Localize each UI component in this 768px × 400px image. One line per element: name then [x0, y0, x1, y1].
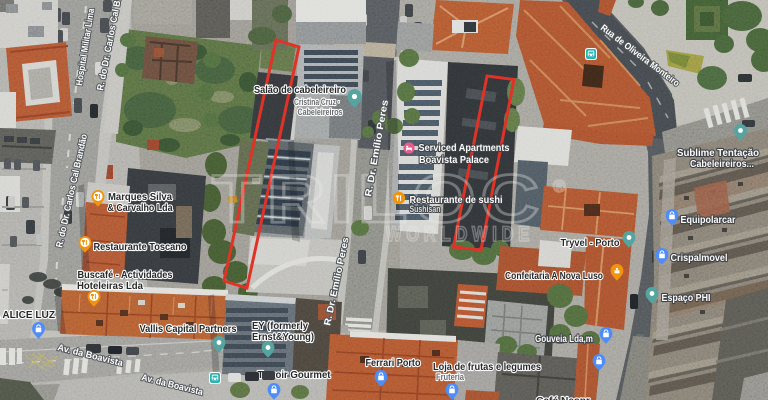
svg-text:Buscafé - Actividades: Buscafé - Actividades — [78, 270, 173, 281]
svg-text:A ALICE LUZ: A ALICE LUZ — [0, 310, 55, 321]
svg-text:Cabeleireiros...: Cabeleireiros... — [690, 159, 754, 170]
svg-text:Confeitaria A Nova Luso: Confeitaria A Nova Luso — [505, 271, 603, 282]
svg-text:Hoteleiras Lda: Hoteleiras Lda — [77, 281, 143, 292]
svg-text:EY (formerly: EY (formerly — [252, 321, 308, 332]
svg-text:Ferrari Porto: Ferrari Porto — [366, 358, 421, 369]
svg-text:Crispalmovel: Crispalmovel — [671, 253, 728, 264]
svg-text:Marques Silva: Marques Silva — [108, 192, 172, 203]
svg-text:WORLDWIDE: WORLDWIDE — [386, 223, 534, 246]
svg-text:& Carvalho Lda: & Carvalho Lda — [108, 203, 173, 214]
svg-text:Ernst&Young): Ernst&Young) — [252, 332, 314, 343]
svg-text:Boavista Palace: Boavista Palace — [419, 155, 489, 166]
svg-text:Vallis Capital Partners: Vallis Capital Partners — [140, 324, 237, 335]
svg-text:Sushisan: Sushisan — [410, 204, 441, 214]
svg-text:Sublime Tentação: Sublime Tentação — [677, 148, 759, 159]
svg-text:Cristina Cruz ·: Cristina Cruz · — [294, 97, 340, 107]
svg-text:Equipolarcar: Equipolarcar — [681, 215, 736, 226]
svg-text:Salão de cabeleireiro: Salão de cabeleireiro — [254, 85, 346, 96]
svg-text:Fruteria: Fruteria — [436, 372, 465, 382]
svg-text:Restaurante Toscano: Restaurante Toscano — [94, 242, 187, 253]
svg-text:Gouveia Lda,m: Gouveia Lda,m — [535, 334, 593, 345]
svg-text:Cabeleireiros: Cabeleireiros — [298, 107, 343, 117]
svg-text:Serviced Apartments: Serviced Apartments — [419, 143, 510, 154]
svg-text:®: ® — [553, 177, 566, 196]
svg-text:Espaço PHI: Espaço PHI — [662, 293, 711, 304]
svg-text:Tryvel - Porto: Tryvel - Porto — [561, 238, 620, 249]
svg-text:Café Nespr: Café Nespr — [536, 396, 590, 400]
